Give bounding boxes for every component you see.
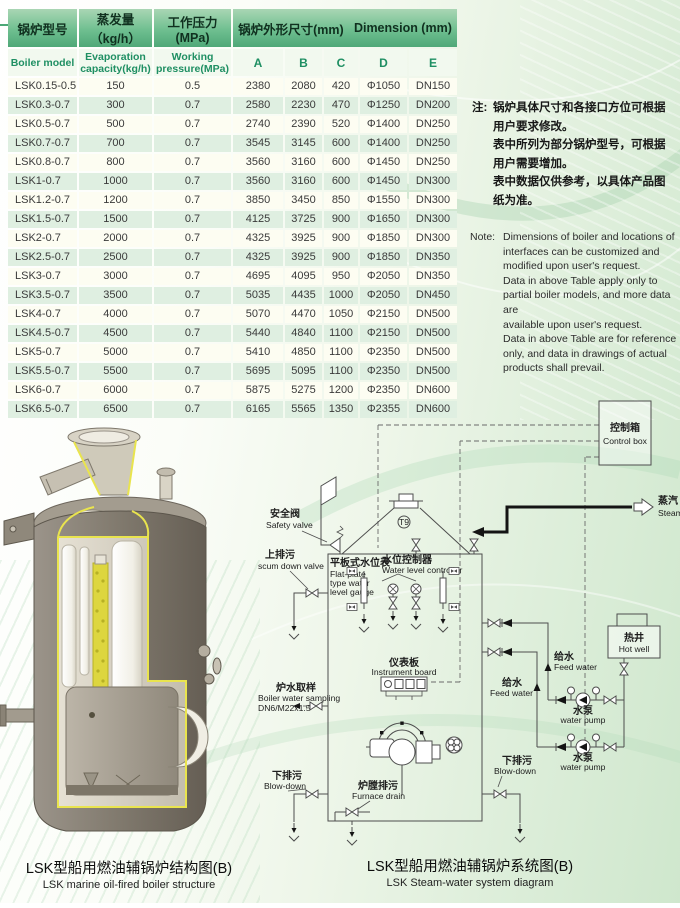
drain-icon [438, 614, 448, 632]
water-pump-row-2: 水泵 water pump [537, 734, 624, 772]
table-cell: 1100 [324, 325, 358, 342]
table-cell: DN250 [409, 116, 457, 133]
table-cell: Φ1050 [360, 78, 407, 95]
table-cell: 0.7 [154, 230, 231, 247]
table-cell: 4695 [233, 268, 283, 285]
table-cell: 500 [79, 116, 152, 133]
table-row: LSK0.5-0.75000.727402390520Φ1400DN250 [8, 116, 457, 133]
feed-valve-icon [488, 648, 500, 656]
table-cell: Φ2050 [360, 287, 407, 304]
table-cell: 0.7 [154, 287, 231, 304]
table-cell: 5035 [233, 287, 283, 304]
table-cell: LSK2.5-0.7 [8, 249, 77, 266]
table-cell: 4325 [233, 249, 283, 266]
table-cell: Φ1450 [360, 173, 407, 190]
table-cell: Φ1250 [360, 97, 407, 114]
table-row: LSK1-0.710000.735603160600Φ1450DN300 [8, 173, 457, 190]
feed-water-lower-label-en: Feed water [490, 688, 533, 698]
table-cell: 0.7 [154, 211, 231, 228]
control-box: 控制箱 Control box [599, 401, 651, 465]
note-line: 纸为准。 [493, 192, 676, 211]
table-row: LSK0.8-0.78000.735603160600Φ1450DN250 [8, 154, 457, 171]
table-cell: 3560 [233, 173, 283, 190]
table-cell: 0.7 [154, 382, 231, 399]
spec-table-body: LSK0.15-0.51500.523802080420Φ1050DN150LS… [8, 78, 457, 418]
note-line: 用户需要增加。 [493, 155, 676, 174]
table-row: LSK1.2-0.712000.738503450850Φ1550DN300 [8, 192, 457, 209]
control-box-label-en: Control box [603, 436, 648, 446]
furnace-drain-label-en: Furnace drain [352, 791, 405, 801]
table-cell: 600 [324, 173, 358, 190]
table-row: LSK3-0.730000.746954095950Φ2050DN350 [8, 268, 457, 285]
scum-label-cn: 上排污 [265, 548, 295, 561]
note-line: only, and data in drawings of actual [503, 347, 680, 362]
blow-down-left-branch: 下排污 Blow-down [264, 769, 328, 841]
table-cell: 3160 [285, 154, 322, 171]
table-cell: 900 [324, 249, 358, 266]
table-cell: DN250 [409, 135, 457, 152]
subheader-c: C [324, 49, 358, 76]
table-cell: 2580 [233, 97, 283, 114]
table-cell: DN500 [409, 363, 457, 380]
table-cell: 0.7 [154, 173, 231, 190]
table-cell: Φ2350 [360, 363, 407, 380]
table-cell: 3560 [233, 154, 283, 171]
table-cell: 3925 [285, 230, 322, 247]
table-cell: 0.7 [154, 268, 231, 285]
table-cell: 0.7 [154, 97, 231, 114]
table-row: LSK1.5-0.715000.741253725900Φ1650DN300 [8, 211, 457, 228]
caption-structure-cn: LSK型船用燃油辅锅炉结构图(B) [0, 857, 258, 878]
note-line: 表中数据仅供参考，以具体产品图 [493, 173, 676, 192]
table-cell: 0.5 [154, 78, 231, 95]
pump2-label-en: water pump [560, 762, 606, 772]
furnace-drain-valve-icon [346, 808, 358, 816]
check-valve-icon [502, 648, 512, 656]
table-cell: LSK0.8-0.7 [8, 154, 77, 171]
header-dimension: 锅炉外形尺寸(mm) Dimension (mm) [233, 9, 457, 47]
table-cell: DN300 [409, 173, 457, 190]
table-cell: 1500 [79, 211, 152, 228]
table-row: LSK2-0.720000.743253925900Φ1850DN300 [8, 230, 457, 247]
table-cell: 2500 [79, 249, 152, 266]
level-gauge-glass [440, 578, 446, 603]
steam-line: 蒸汽 Steam [472, 494, 680, 537]
table-cell: DN500 [409, 325, 457, 342]
table-cell: 4000 [79, 306, 152, 323]
table-cell: 600 [324, 135, 358, 152]
vent-flag [321, 477, 336, 505]
t9-label: T9 [399, 517, 409, 527]
header-dimension-en: Dimension (mm) [354, 21, 452, 35]
table-cell: 900 [324, 211, 358, 228]
table-cell: LSK0.15-0.5 [8, 78, 77, 95]
steam-arrowhead [472, 527, 484, 537]
table-cell: LSK4-0.7 [8, 306, 77, 323]
flow-arrow-up [534, 683, 541, 691]
drain-icon [347, 827, 357, 845]
note-english-label: Note: [470, 230, 495, 245]
hot-well-label-en: Hot well [619, 644, 650, 654]
table-cell: 4840 [285, 325, 322, 342]
hot-well-valve-icon [620, 663, 628, 675]
table-cell: 0.7 [154, 135, 231, 152]
drain-icon [411, 611, 421, 629]
table-cell: LSK0.7-0.7 [8, 135, 77, 152]
subheader-b: B [285, 49, 322, 76]
instrument-board: 仪表板 Instrument board [372, 656, 437, 700]
table-row: LSK0.7-0.77000.735453145600Φ1400DN250 [8, 135, 457, 152]
note-line: interfaces can be customized and [503, 245, 680, 260]
table-cell: 420 [324, 78, 358, 95]
table-cell: DN500 [409, 344, 457, 361]
table-cell: 2000 [79, 230, 152, 247]
feed-water-upper-label-en: Feed water [554, 662, 597, 672]
sampling-valve-icon [310, 702, 322, 710]
pump1-label-en: water pump [560, 715, 606, 725]
table-cell: 300 [79, 97, 152, 114]
drain-icon [289, 621, 299, 639]
table-cell: 3850 [233, 192, 283, 209]
table-row: LSK5-0.750000.7541048501100Φ2350DN500 [8, 344, 457, 361]
blowdown-valve-icon [494, 790, 506, 798]
table-cell: 1000 [324, 287, 358, 304]
table-row: LSK5.5-0.755000.7569550951100Φ2350DN500 [8, 363, 457, 380]
boiler-spec-table: 锅炉型号 蒸发量（kg/h） 工作压力(MPa) 锅炉外形尺寸(mm) Dime… [6, 7, 459, 420]
subheader-boiler-model: Boiler model [8, 49, 77, 76]
gauge-valve-icon [347, 568, 357, 575]
sampling-label-en: Boiler water sampling [258, 693, 340, 703]
blow-down-right-branch: 下排污 Blow-down [482, 754, 536, 842]
table-cell: 5095 [285, 363, 322, 380]
caption-structure-en: LSK marine oil-fired boiler structure [0, 879, 258, 891]
hot-well-label-cn: 热井 [624, 631, 644, 644]
level-gauge-glass [361, 578, 367, 603]
table-cell: Φ1850 [360, 249, 407, 266]
table-cell: 470 [324, 97, 358, 114]
table-cell: LSK5-0.7 [8, 344, 77, 361]
table-cell: 520 [324, 116, 358, 133]
table-cell: 1050 [324, 306, 358, 323]
furnace-drain-branch: 炉膛排污 Furnace drain [335, 779, 405, 845]
table-cell: 5410 [233, 344, 283, 361]
table-cell: LSK4.5-0.7 [8, 325, 77, 342]
table-cell: 0.7 [154, 363, 231, 380]
table-cell: LSK2-0.7 [8, 230, 77, 247]
table-cell: 0.7 [154, 154, 231, 171]
note-chinese: 注: 锅炉具体尺寸和各接口方位可根据用户要求修改。表中所列为部分锅炉型号，可根据… [472, 99, 676, 210]
scum-down-valve-branch: 上排污 scum down valve [258, 548, 328, 639]
note-line: modified upon user's request. [503, 259, 680, 274]
note-line: 表中所列为部分锅炉型号，可根据 [493, 136, 676, 155]
table-cell: 4435 [285, 287, 322, 304]
table-cell: LSK3.5-0.7 [8, 287, 77, 304]
table-cell: 5070 [233, 306, 283, 323]
table-cell: LSK6-0.7 [8, 382, 77, 399]
blowdown-right-label-en: Blow-down [494, 766, 536, 776]
table-cell: 2380 [233, 78, 283, 95]
water-pump-row-1: 水泵 water pump [548, 687, 624, 725]
roof-valve-icon [412, 539, 420, 551]
table-cell: 0.7 [154, 116, 231, 133]
gauge-valve-icon [347, 604, 357, 611]
table-cell: LSK1.5-0.7 [8, 211, 77, 228]
table-cell: 4095 [285, 268, 322, 285]
table-cell: Φ1400 [360, 135, 407, 152]
water-level-instruments: 平板式水位表 Flat-plate type water level gauge… [330, 553, 463, 632]
table-cell: Φ1650 [360, 211, 407, 228]
steam-water-system-diagram: 控制箱 Control box T9 [230, 395, 680, 857]
table-cell: Φ2150 [360, 306, 407, 323]
drain-icon [359, 614, 369, 632]
table-cell: 3725 [285, 211, 322, 228]
note-line: Dimensions of boiler and locations of [503, 230, 680, 245]
feed-valve-icon [488, 619, 500, 627]
table-cell: 4500 [79, 325, 152, 342]
table-cell: 850 [324, 192, 358, 209]
table-row: LSK0.15-0.51500.523802080420Φ1050DN150 [8, 78, 457, 95]
scum-valve-icon [306, 589, 318, 597]
drain-icon [388, 611, 398, 629]
table-cell: 1200 [79, 192, 152, 209]
caption-system-cn: LSK型船用燃油辅锅炉系统图(B) [305, 855, 635, 876]
header-evaporation-cn: 蒸发量（kg/h） [79, 9, 152, 47]
table-cell: 3500 [79, 287, 152, 304]
pressure-gauge-icon [568, 734, 575, 747]
table-cell: DN300 [409, 192, 457, 209]
table-cell: 2740 [233, 116, 283, 133]
gauge-valve-icon [449, 604, 459, 611]
table-cell: 6000 [79, 382, 152, 399]
table-cell: Φ2050 [360, 268, 407, 285]
sampling-spec: DN6/M22x1.5 [258, 703, 311, 713]
table-cell: 1100 [324, 363, 358, 380]
table-cell: 4125 [233, 211, 283, 228]
caption-system: LSK型船用燃油辅锅炉系统图(B) LSK Steam-water system… [305, 855, 635, 889]
table-row: LSK3.5-0.735000.7503544351000Φ2050DN450 [8, 287, 457, 304]
table-cell: DN350 [409, 249, 457, 266]
caption-system-en: LSK Steam-water system diagram [305, 877, 635, 889]
note-line: products shall prevail. [503, 361, 680, 376]
caption-structure: LSK型船用燃油辅锅炉结构图(B) LSK marine oil-fired b… [0, 857, 258, 891]
table-row: LSK4-0.740000.7507044701050Φ2150DN500 [8, 306, 457, 323]
table-cell: 0.7 [154, 306, 231, 323]
burner-body [389, 739, 415, 765]
pump-icon [576, 693, 590, 707]
table-cell: 0.7 [154, 344, 231, 361]
table-cell: 3925 [285, 249, 322, 266]
table-cell: LSK1.2-0.7 [8, 192, 77, 209]
note-line: 用户要求修改。 [493, 118, 676, 137]
control-box-label-cn: 控制箱 [610, 421, 640, 434]
feed-water-branches: 给水 Feed water 给水 Feed water [482, 619, 597, 747]
note-line: partial boiler models, and more data are [503, 288, 680, 317]
table-cell: DN300 [409, 211, 457, 228]
pressure-gauge-icon [593, 734, 600, 747]
table-cell: Φ2150 [360, 325, 407, 342]
table-cell: LSK0.3-0.7 [8, 97, 77, 114]
table-cell: 2230 [285, 97, 322, 114]
check-valve-icon [556, 696, 566, 704]
drain-icon [289, 823, 299, 841]
table-cell: 600 [324, 154, 358, 171]
table-cell: 5000 [79, 344, 152, 361]
note-english: Note: Dimensions of boiler and locations… [470, 230, 680, 376]
hot-well: 热井 Hot well [608, 614, 660, 747]
table-cell: 900 [324, 230, 358, 247]
check-valve-icon [502, 619, 512, 627]
table-cell: LSK5.5-0.7 [8, 363, 77, 380]
blowdown-valve-icon [306, 790, 318, 798]
header-dimension-cn: 锅炉外形尺寸(mm) [238, 19, 344, 38]
table-cell: DN300 [409, 230, 457, 247]
flow-arrow-up [545, 663, 552, 671]
safety-valve-label-cn: 安全阀 [270, 507, 300, 520]
steam-outlet-valve-icon [470, 539, 478, 551]
table-cell: DN450 [409, 287, 457, 304]
table-header-top: 锅炉型号 蒸发量（kg/h） 工作压力(MPa) 锅炉外形尺寸(mm) Dime… [8, 9, 457, 47]
pump-valve-icon [604, 696, 616, 704]
table-cell: 800 [79, 154, 152, 171]
fan-icon [446, 737, 462, 753]
safety-valve-icon [330, 538, 340, 552]
table-cell: 3145 [285, 135, 322, 152]
pump-valve-icon [604, 743, 616, 751]
table-cell: 4470 [285, 306, 322, 323]
table-cell: 950 [324, 268, 358, 285]
note-line: available upon user's request. [503, 318, 680, 333]
table-cell: Φ2350 [360, 344, 407, 361]
steam-label-cn: 蒸汽 [658, 494, 678, 507]
table-cell: 1100 [324, 344, 358, 361]
table-cell: DN350 [409, 268, 457, 285]
table-cell: Φ1850 [360, 230, 407, 247]
table-cell: Φ1400 [360, 116, 407, 133]
note-chinese-label: 注: [472, 99, 487, 118]
note-english-lines: Dimensions of boiler and locations ofint… [503, 230, 680, 376]
table-cell: 2080 [285, 78, 322, 95]
table-cell: LSK0.5-0.7 [8, 116, 77, 133]
table-header-sub: Boiler model Evaporation capacity(kg/h) … [8, 49, 457, 76]
table-cell: LSK3-0.7 [8, 268, 77, 285]
catalog-page: 锅炉型号 蒸发量（kg/h） 工作压力(MPa) 锅炉外形尺寸(mm) Dime… [0, 0, 680, 903]
note-line: 锅炉具体尺寸和各接口方位可根据 [493, 99, 676, 118]
table-cell: 5500 [79, 363, 152, 380]
table-cell: 3545 [233, 135, 283, 152]
table-cell: DN200 [409, 97, 457, 114]
table-cell: 0.7 [154, 325, 231, 342]
table-row: LSK0.3-0.73000.725802230470Φ1250DN200 [8, 97, 457, 114]
table-cell: 0.7 [154, 192, 231, 209]
table-cell: 4850 [285, 344, 322, 361]
steam-label-en: Steam [658, 508, 680, 518]
table-cell: 5695 [233, 363, 283, 380]
note-line: Data in above Table are for reference [503, 332, 680, 347]
table-cell: Φ1450 [360, 154, 407, 171]
header-pressure-cn: 工作压力(MPa) [154, 9, 231, 47]
gauge-valve-icon [449, 568, 459, 575]
controller-valve-icon [412, 597, 420, 609]
note-chinese-lines: 锅炉具体尺寸和各接口方位可根据用户要求修改。表中所列为部分锅炉型号，可根据用户需… [493, 99, 676, 210]
drain-icon [515, 824, 525, 842]
flat-gauge-label-en3: level gauge [330, 587, 374, 597]
header-boiler-model-cn: 锅炉型号 [8, 9, 77, 47]
table-cell: 2390 [285, 116, 322, 133]
table-cell: Φ1550 [360, 192, 407, 209]
table-cell: DN500 [409, 306, 457, 323]
boiler-structure-illustration [0, 415, 240, 860]
table-row: LSK4.5-0.745000.7544048401100Φ2150DN500 [8, 325, 457, 342]
table-cell: DN250 [409, 154, 457, 171]
subheader-pressure: Working pressure(MPa) [154, 49, 231, 76]
subheader-e: E [409, 49, 457, 76]
subheader-d: D [360, 49, 407, 76]
check-valve-icon [556, 743, 566, 751]
subheader-evaporation: Evaporation capacity(kg/h) [79, 49, 152, 76]
table-row: LSK2.5-0.725000.743253925900Φ1850DN350 [8, 249, 457, 266]
subheader-a: A [233, 49, 283, 76]
boiler-body [0, 428, 221, 831]
scum-label-en: scum down valve [258, 561, 324, 571]
table-cell: 0.7 [154, 249, 231, 266]
table-cell: 150 [79, 78, 152, 95]
table-cell: LSK1-0.7 [8, 173, 77, 190]
table-cell: 5440 [233, 325, 283, 342]
steam-direction-arrow-icon [634, 499, 653, 515]
safety-valve-assembly: 安全阀 Safety valve [266, 477, 343, 554]
table-cell: DN150 [409, 78, 457, 95]
note-line: Data in above Table apply only to [503, 274, 680, 289]
pressure-gauge-icon [568, 687, 575, 700]
pressure-gauge-icon [593, 687, 600, 700]
safety-valve-label-en: Safety valve [266, 520, 313, 530]
table-cell: 3450 [285, 192, 322, 209]
table-cell: 700 [79, 135, 152, 152]
instrument-board-label-en: Instrument board [372, 667, 437, 677]
table-cell: 3160 [285, 173, 322, 190]
pump-icon [576, 740, 590, 754]
table-cell: 3000 [79, 268, 152, 285]
controller-valve-icon [389, 597, 397, 609]
table-cell: 1000 [79, 173, 152, 190]
table-cell: 4325 [233, 230, 283, 247]
